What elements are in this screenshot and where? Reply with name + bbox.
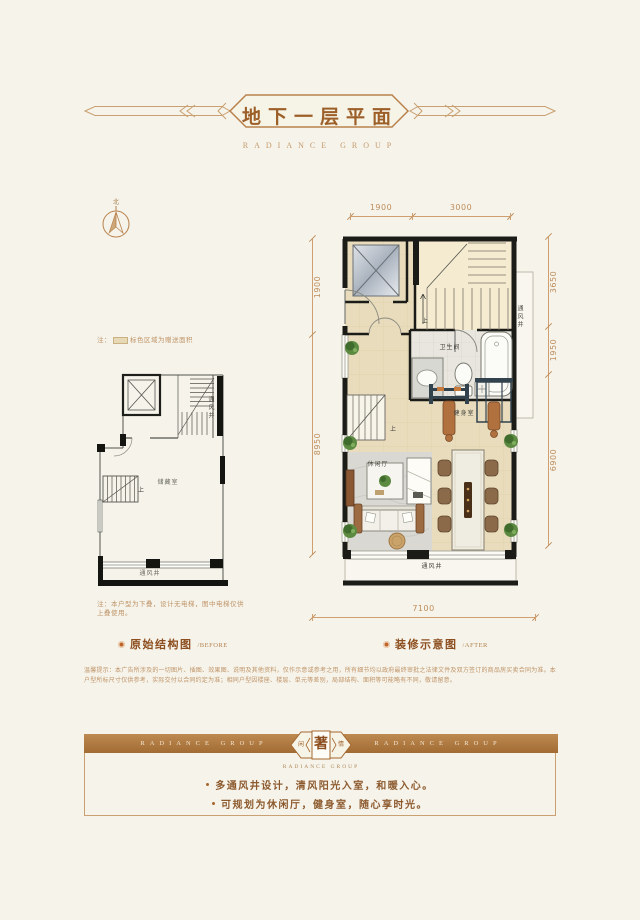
feature-text-1: 多通风井设计，清风阳光入室，和暖入心。 <box>215 777 434 792</box>
header-ornament: 地下一层平面 <box>84 90 556 134</box>
bonus-area-swatch <box>113 337 128 344</box>
after-stair-up-label: 上 <box>422 316 428 325</box>
badge-main-char: 著 <box>313 738 329 752</box>
console-table-icon <box>346 470 354 506</box>
caption-after-text: 装修示意图 <box>395 636 458 652</box>
before-vent-bottom-label: 通风井 <box>130 571 170 578</box>
badge-left-char: 闲 <box>296 742 306 748</box>
caption-before-text: 原始结构图 <box>130 636 193 652</box>
after-lounge-label: 休闲厅 <box>358 462 398 469</box>
badge-right-char: 情 <box>336 742 346 748</box>
toilet-icon <box>455 363 472 396</box>
vent-shaft-right <box>516 272 533 418</box>
staircase-lower-icon <box>103 476 138 502</box>
window <box>98 500 102 532</box>
before-vent-right-label: 通风井 <box>206 396 213 420</box>
pouf-icon <box>389 533 405 549</box>
feature-text-2: 可规划为休闲厅，健身室，随心享时光。 <box>221 796 428 811</box>
after-vent-bottom-label: 通风井 <box>410 564 454 571</box>
dimension-top: 1900 3000 <box>350 203 510 219</box>
before-note-text: 标色区域为赠送面积 <box>130 337 193 344</box>
compass: 北 <box>96 197 136 243</box>
shelf-icon <box>407 458 431 504</box>
dim-label: 3000 <box>412 203 510 212</box>
floor-plan-after: 卫生间 健身室 休闲厅 通风井 通风井 上 上 <box>330 225 545 605</box>
before-room-label: 储藏室 <box>148 480 188 487</box>
elevator-icon <box>123 375 160 415</box>
dim-label: 3650 <box>549 262 559 302</box>
sink-icon <box>412 358 443 398</box>
caption-before: 原始结构图 /BEFORE <box>118 636 228 652</box>
disclaimer-text: 温馨提示：本广告所涉及的一切图片、插图、效果图、说明及其他资料，仅作示意或参考之… <box>84 667 556 686</box>
after-gym-label: 健身室 <box>444 411 484 418</box>
caption-bullet-icon <box>383 641 390 648</box>
floor-plan-before-drawing <box>90 360 240 590</box>
dim-label: 1900 <box>350 203 412 212</box>
feature-bullet-icon <box>212 802 215 805</box>
brochure-page: { "header": { "title": "地下一层平面", "brand"… <box>0 0 640 920</box>
caption-before-en: /BEFORE <box>198 639 228 649</box>
header-brand: RADIANCE GROUP <box>84 141 556 150</box>
compass-icon <box>99 204 133 240</box>
sofa-icon <box>354 504 424 533</box>
dim-label: 8950 <box>313 424 323 464</box>
feature-bullet-icon <box>206 783 209 786</box>
after-vent-right-label: 通风井 <box>515 305 522 329</box>
floor-plan-before: 注：标色区域为赠送面积 <box>90 330 242 622</box>
before-note-prefix: 注： <box>97 337 111 344</box>
before-note-top: 注：标色区域为赠送面积 <box>97 336 242 345</box>
after-stair-up2-label: 上 <box>390 424 396 433</box>
feature-box: RADIANCE GROUP RADIANCE GROUP 闲 著 情 RADI… <box>84 734 556 816</box>
before-stair-up-label: 上 <box>138 485 144 494</box>
brand-badge: 闲 著 情 <box>289 727 353 763</box>
caption-after-en: /AFTER <box>463 639 488 649</box>
dimension-bottom: 7100 <box>312 604 535 620</box>
dim-label: 1950 <box>549 330 559 370</box>
feature-item: 可规划为休闲厅，健身室，随心享时光。 <box>85 796 555 811</box>
dim-label: 6900 <box>549 440 559 480</box>
banner-brand-left: RADIANCE GROUP <box>114 740 294 747</box>
badge-brand-small: RADIANCE GROUP <box>85 764 557 770</box>
caption-after: 装修示意图 /AFTER <box>383 636 488 652</box>
banner-brand-right: RADIANCE GROUP <box>348 740 528 747</box>
floor-plan-after-drawing <box>335 230 535 592</box>
caption-bullet-icon <box>118 641 125 648</box>
staircase-lower-icon <box>347 395 385 440</box>
dim-label: 1900 <box>313 267 323 307</box>
before-note-bottom: 注：本户型为下叠，设计无电梯，图中电梯仅供上叠使用。 <box>97 600 247 618</box>
after-bathroom-label: 卫生间 <box>430 345 470 352</box>
dimension-right: 3650 1950 6900 <box>544 237 560 546</box>
page-title: 地下一层平面 <box>232 102 408 129</box>
elevator-icon <box>353 245 399 296</box>
feature-item: 多通风井设计，清风阳光入室，和暖入心。 <box>85 777 555 792</box>
window-band <box>100 562 223 568</box>
dim-label: 7100 <box>312 604 535 613</box>
dimension-left: 1900 8950 <box>306 239 322 555</box>
